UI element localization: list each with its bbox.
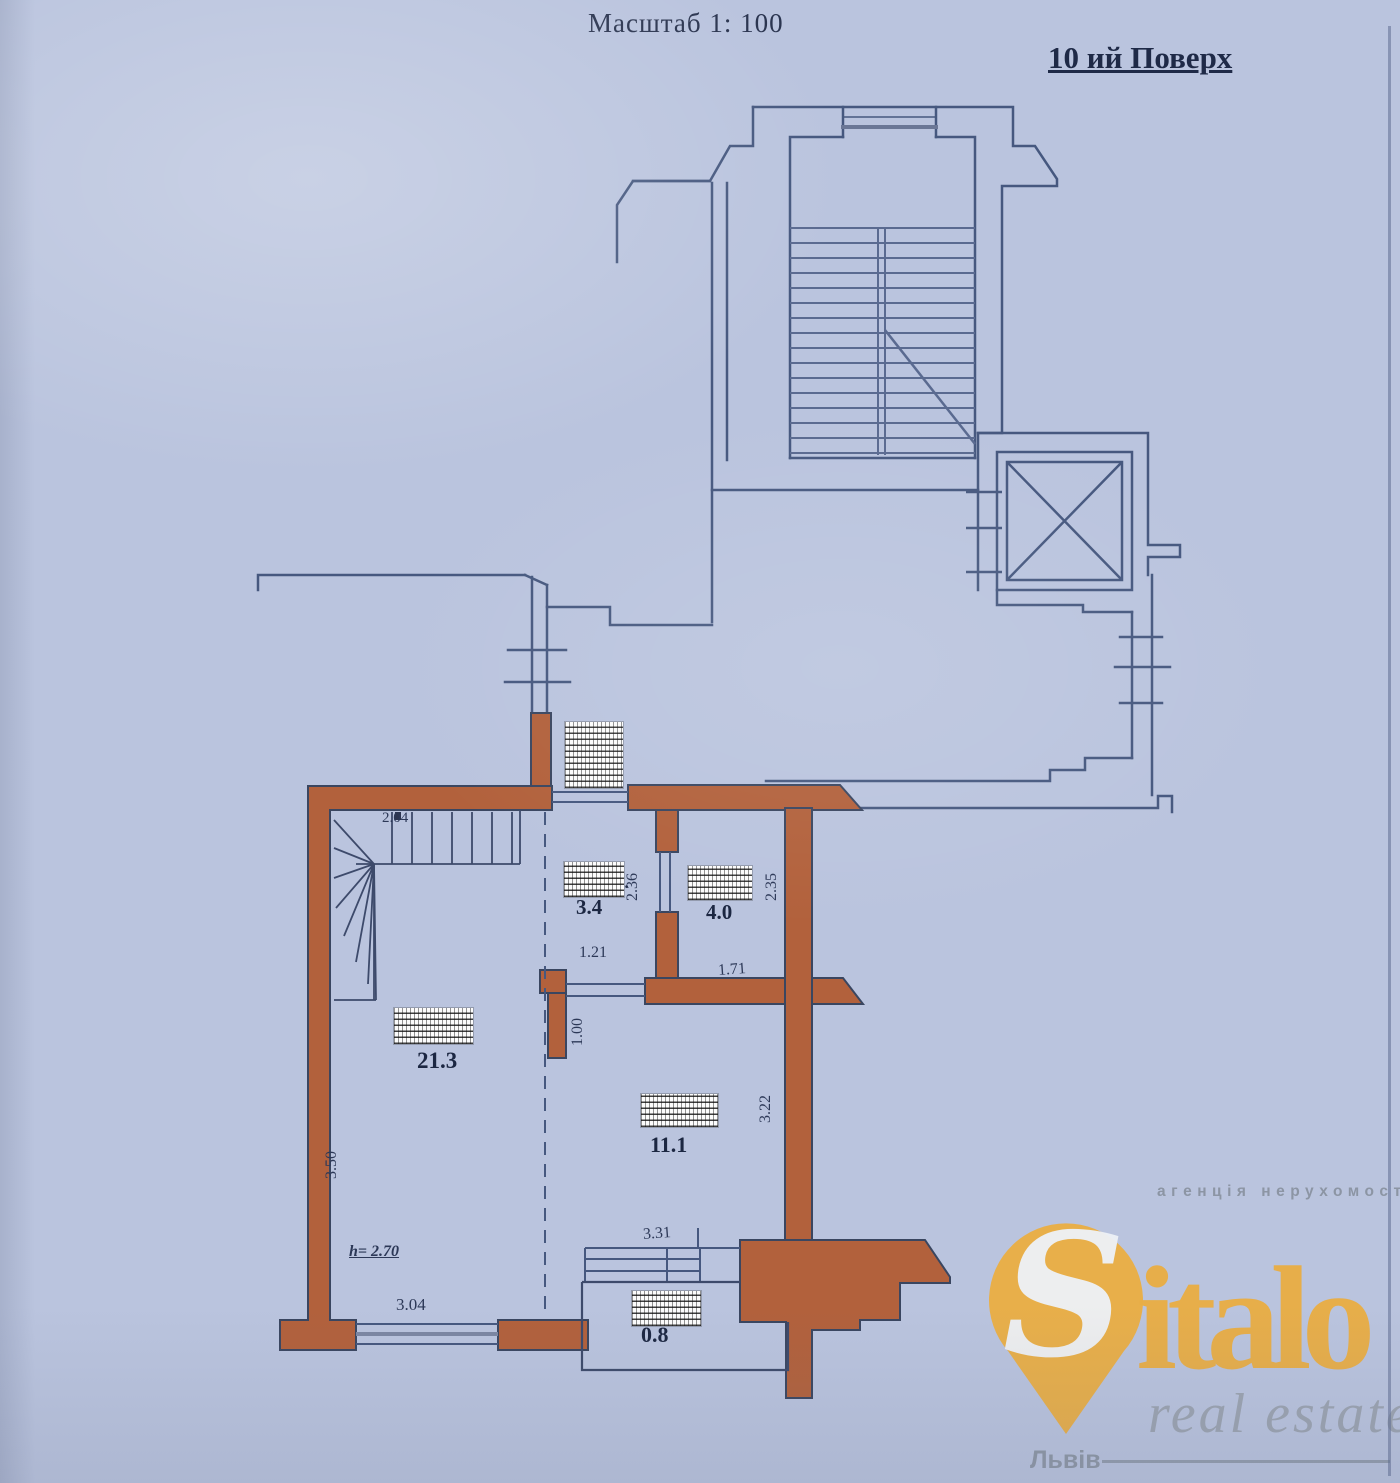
censored-label — [632, 1291, 701, 1326]
censored-label — [641, 1094, 718, 1127]
censored-label — [565, 722, 623, 788]
dim-stair-width: 2.04 — [382, 810, 408, 827]
floor-plan-drawing: агенція нерухомості S italo real estate … — [0, 0, 1400, 1483]
dim-living-width: 3.04 — [396, 1295, 426, 1315]
floor-plan-page: Масштаб 1: 100 10 ий Поверх — [0, 0, 1400, 1483]
elevator-shaft — [966, 452, 1132, 590]
censored-label — [394, 1008, 473, 1044]
apartment-walls — [280, 713, 950, 1398]
brand-city-rule — [1102, 1460, 1390, 1463]
dim-living-height: 3.50 — [323, 1151, 341, 1179]
dim-balcony-width: 3.31 — [642, 1224, 671, 1244]
brand-city: Львів — [1030, 1446, 1101, 1474]
watermark-logo: агенція нерухомості S italo real estate … — [989, 1183, 1400, 1474]
censored-label — [564, 862, 624, 897]
room-area-wc: 4.0 — [706, 900, 732, 925]
page-edge-line — [1388, 26, 1391, 1476]
ceiling-height-note: h= 2.70 — [349, 1243, 399, 1261]
floor-title: 10 ий Поверх — [1048, 40, 1232, 76]
winder-stairs — [334, 810, 520, 1000]
room-area-living: 21.3 — [417, 1048, 457, 1074]
brand-letter-s: S — [1003, 1196, 1126, 1396]
hall-wc-door — [660, 852, 670, 912]
brand-name: italo — [1136, 1237, 1371, 1401]
watermark-tagline: агенція нерухомості — [1157, 1183, 1400, 1200]
entrance-door — [552, 792, 628, 802]
doors-and-windows — [356, 792, 740, 1344]
dim-hall-width: 1.21 — [579, 944, 607, 962]
stair-treads — [790, 228, 975, 455]
dim-room-height: 3.22 — [757, 1095, 775, 1123]
scale-title: Масштаб 1: 100 — [588, 8, 784, 39]
dim-wc-width: 1.71 — [717, 960, 746, 980]
brand-subtitle: real estate — [1148, 1383, 1400, 1445]
hall-room-door — [566, 984, 645, 996]
room-area-hall: 3.4 — [576, 895, 602, 920]
elevator-x-mark — [1007, 462, 1122, 580]
censored-label — [688, 866, 752, 900]
room-area-room: 11.1 — [650, 1132, 687, 1158]
dim-wc-height: 2.35 — [763, 873, 781, 901]
dim-stub-height: 1.00 — [569, 1018, 587, 1046]
stairwell — [617, 107, 1057, 622]
